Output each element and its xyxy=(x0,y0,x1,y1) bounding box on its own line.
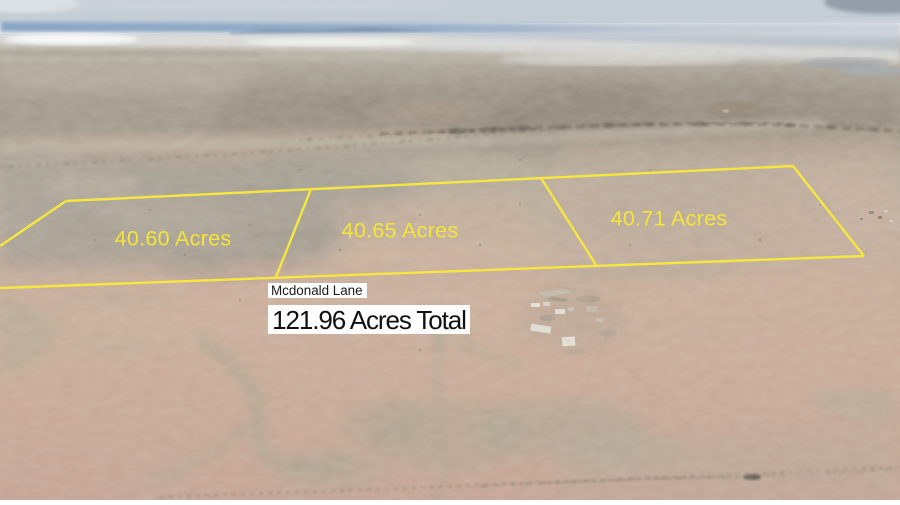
svg-text:40.60 Acres: 40.60 Acres xyxy=(115,227,232,251)
svg-text:40.65 Acres: 40.65 Acres xyxy=(342,219,459,243)
svg-text:40.71 Acres: 40.71 Acres xyxy=(611,207,728,231)
